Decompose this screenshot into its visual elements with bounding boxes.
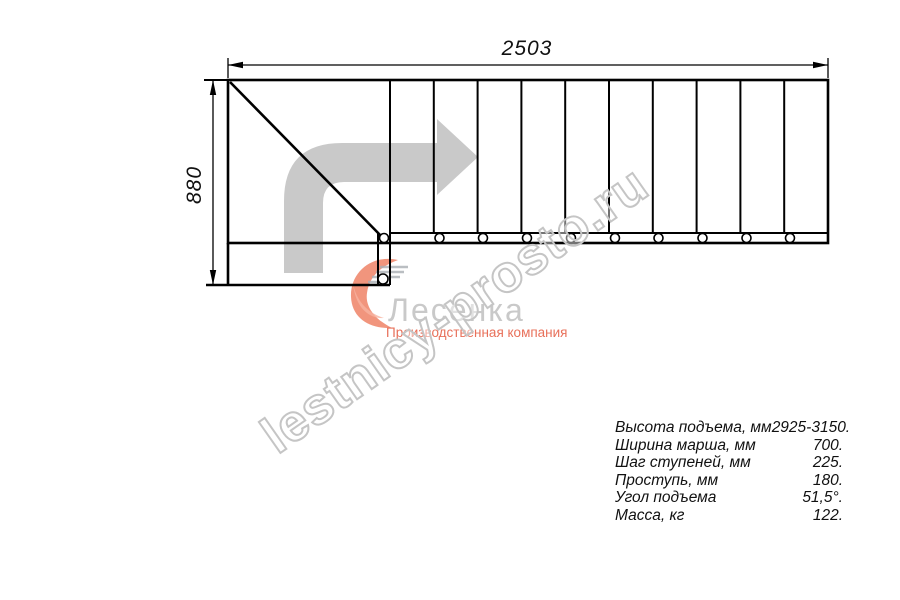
spec-label: Угол подъема: [615, 489, 716, 507]
spec-row: Высота подъема, мм2925-3150.: [615, 419, 843, 437]
mount-hole: [378, 274, 388, 284]
spec-value: 122.: [813, 507, 843, 525]
stair-plan-page: 2503 880 Лесенка Производственная компан…: [0, 0, 900, 600]
spec-row: Ширина марша, мм700.: [615, 437, 843, 455]
dim-arrow-top-icon: [210, 80, 216, 95]
spec-label: Высота подъема, мм: [615, 419, 772, 437]
mount-hole: [380, 234, 389, 243]
direction-arrow-icon: [284, 119, 478, 273]
spec-label: Проступь, мм: [615, 472, 718, 490]
specs-table: Высота подъема, мм2925-3150.Ширина марша…: [615, 419, 843, 525]
spec-value: 700.: [813, 437, 843, 455]
spec-row: Шаг ступеней, мм225.: [615, 454, 843, 472]
mount-hole: [435, 234, 444, 243]
mount-hole: [479, 234, 488, 243]
spec-label: Ширина марша, мм: [615, 437, 756, 455]
spec-value: 180.: [813, 472, 843, 490]
dim-arrow-bottom-icon: [210, 270, 216, 285]
dim-arrow-left-icon: [228, 62, 243, 68]
spec-value: 2925-3150.: [772, 419, 850, 437]
spec-label: Масса, кг: [615, 507, 684, 525]
dim-arrow-right-icon: [813, 62, 828, 68]
spec-row: Масса, кг122.: [615, 507, 843, 525]
spec-value: 51,5°.: [802, 489, 843, 507]
spec-label: Шаг ступеней, мм: [615, 454, 751, 472]
spec-row: Угол подъема51,5°.: [615, 489, 843, 507]
mount-hole: [654, 234, 663, 243]
mount-hole: [698, 234, 707, 243]
width-dimension-label: 2503: [427, 37, 627, 61]
height-dimension-label: 880: [183, 135, 209, 235]
mount-hole: [742, 234, 751, 243]
mount-hole: [786, 234, 795, 243]
spec-row: Проступь, мм180.: [615, 472, 843, 490]
spec-value: 225.: [813, 454, 843, 472]
